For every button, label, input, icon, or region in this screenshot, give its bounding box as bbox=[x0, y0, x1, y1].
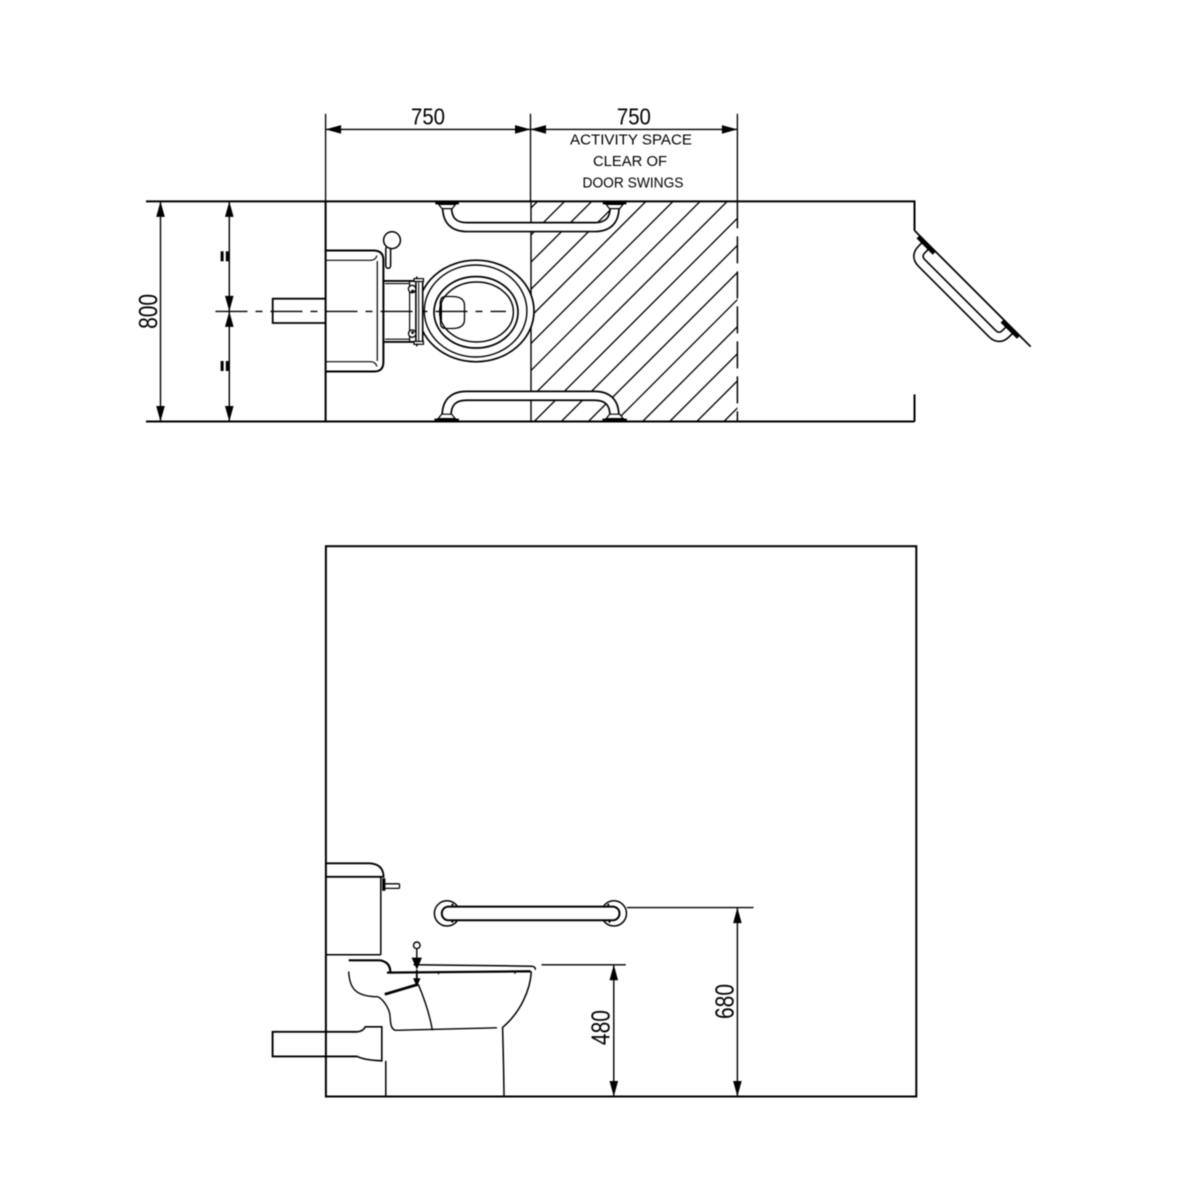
svg-text:750: 750 bbox=[411, 104, 445, 130]
svg-text:800: 800 bbox=[135, 294, 163, 329]
svg-text:CLEAR OF: CLEAR OF bbox=[593, 153, 667, 170]
svg-text:DOOR SWINGS: DOOR SWINGS bbox=[583, 175, 684, 192]
svg-text:680: 680 bbox=[712, 984, 740, 1019]
svg-text:ACTIVITY SPACE: ACTIVITY SPACE bbox=[570, 132, 692, 149]
svg-text:750: 750 bbox=[617, 104, 651, 130]
svg-text:480: 480 bbox=[588, 1010, 616, 1045]
